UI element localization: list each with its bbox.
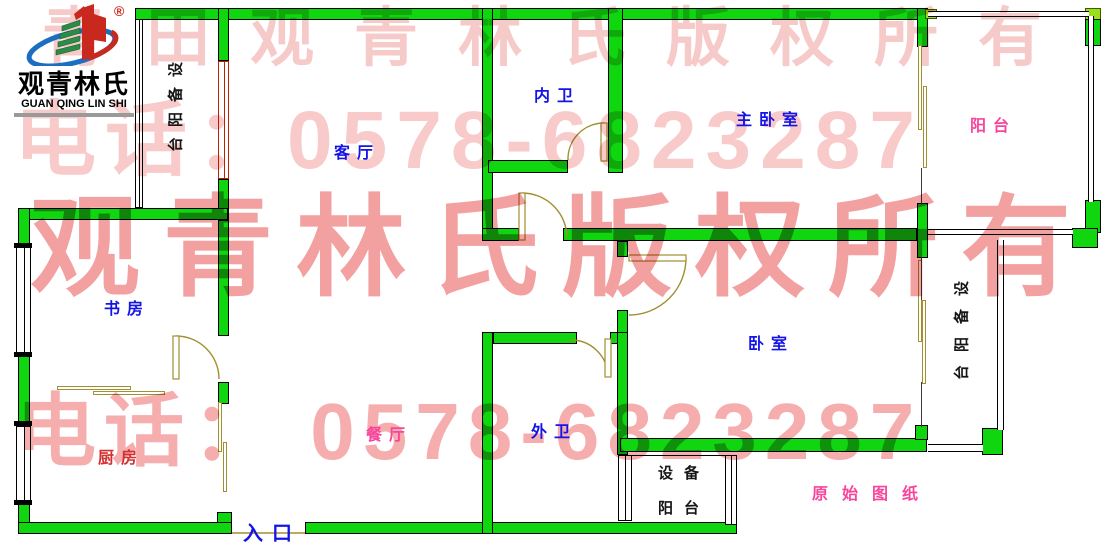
- sliding-door: [922, 300, 926, 384]
- wall: [482, 332, 493, 534]
- floor-plan: [0, 0, 1111, 545]
- sliding-door: [923, 86, 927, 168]
- company-logo: ® 观青林氏 GUAN QING LIN SHI: [8, 2, 140, 117]
- window: [16, 247, 31, 354]
- registered-mark-icon: ®: [114, 3, 125, 19]
- wall: [218, 220, 229, 336]
- door-panel: [601, 123, 607, 161]
- wall: [18, 208, 228, 220]
- window-cap: [14, 243, 32, 248]
- balcony-rail: [928, 229, 1073, 235]
- door-panel: [605, 339, 611, 377]
- window-cap: [14, 421, 32, 426]
- wall: [1072, 228, 1098, 248]
- logo-name-cn: 观青林氏: [8, 71, 140, 98]
- wall: [218, 382, 229, 404]
- wall: [563, 228, 917, 241]
- balcony-rail: [928, 11, 1089, 17]
- door-panel: [629, 255, 686, 261]
- window: [16, 426, 31, 502]
- logo-emblem: ®: [14, 2, 134, 66]
- window: [618, 455, 632, 521]
- door-arc-layer: [0, 0, 1111, 545]
- wall: [982, 428, 1003, 455]
- wall: [617, 332, 628, 455]
- door-arc: [571, 340, 608, 377]
- wall: [482, 228, 519, 241]
- sliding-door: [218, 402, 222, 452]
- wall: [217, 512, 232, 523]
- door-arc: [522, 193, 567, 238]
- sliding-door: [918, 45, 922, 130]
- balcony-rail: [1088, 16, 1094, 202]
- wall: [18, 522, 232, 534]
- wall: [617, 241, 628, 257]
- wall-line: [921, 257, 922, 300]
- door-arc: [176, 336, 219, 379]
- wall: [135, 8, 928, 20]
- window-cap: [14, 500, 32, 505]
- logo-name-en: GUAN QING LIN SHI: [8, 98, 140, 111]
- door-arc: [629, 258, 686, 315]
- wall: [620, 438, 927, 452]
- wall: [305, 522, 737, 534]
- sliding-door: [57, 386, 131, 390]
- wall: [488, 160, 568, 173]
- wall: [915, 425, 928, 440]
- door-panel: [519, 193, 525, 240]
- sliding-door: [93, 391, 165, 395]
- door-arc: [568, 123, 604, 160]
- wall: [917, 203, 928, 258]
- wall: [18, 354, 30, 426]
- wall: [608, 8, 623, 173]
- wall-line: [921, 168, 922, 205]
- balcony-rail: [631, 451, 726, 456]
- floor-plan-page: 青田观青林氏版权所有 电话：0578-6823287 观青林氏版权所有 电话： …: [0, 0, 1111, 545]
- wall: [18, 208, 30, 247]
- window-cap: [14, 352, 32, 357]
- wall: [493, 332, 577, 344]
- door-panel: [173, 336, 179, 379]
- window: [725, 455, 737, 525]
- wall: [218, 8, 229, 61]
- balcony-rail: [928, 444, 983, 452]
- sliding-door: [223, 442, 227, 492]
- balcony-rail: [997, 240, 1004, 430]
- logo-underline: [14, 113, 134, 117]
- wall: [482, 8, 493, 241]
- window: [218, 61, 229, 179]
- wall-line: [921, 382, 922, 427]
